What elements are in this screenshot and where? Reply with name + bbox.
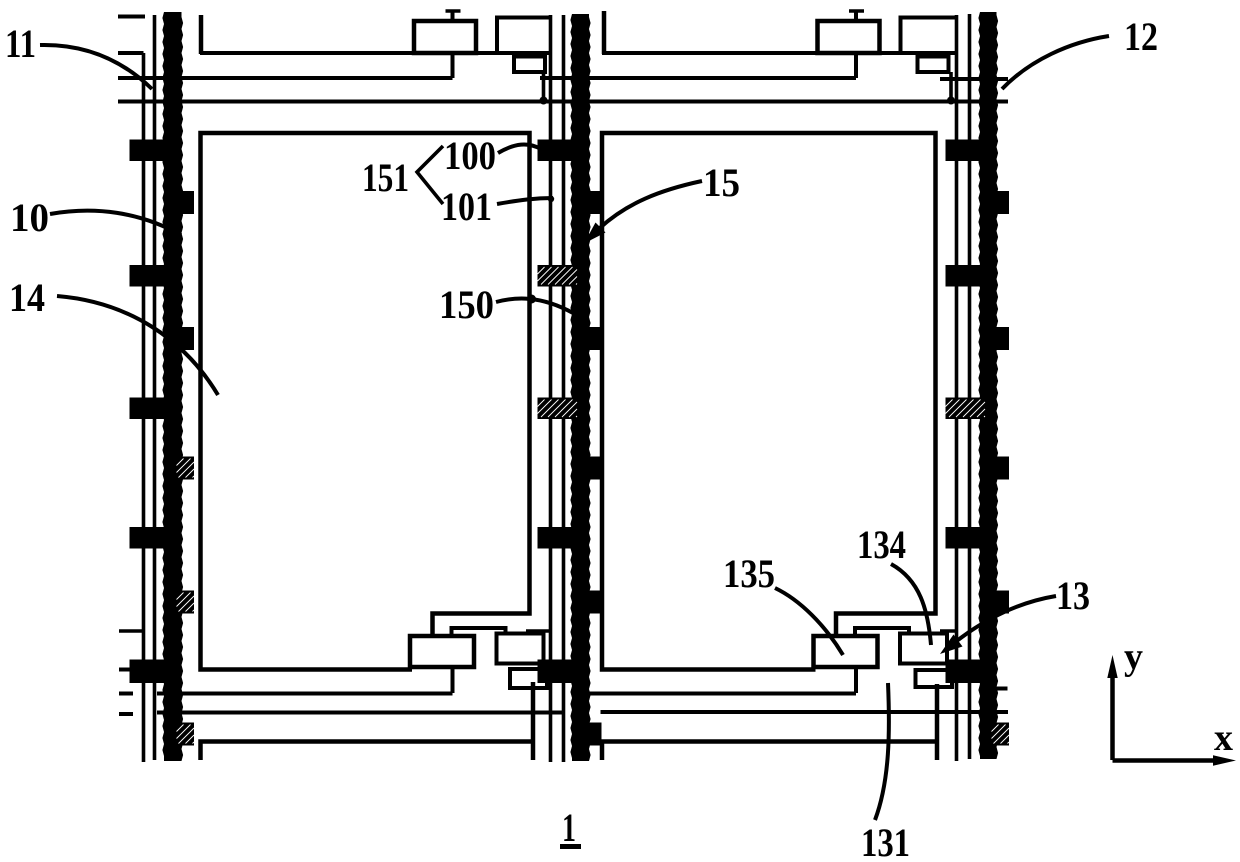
svg-text:14: 14 — [9, 275, 45, 320]
svg-text:135: 135 — [723, 551, 775, 596]
svg-text:12: 12 — [1124, 14, 1158, 59]
svg-text:11: 11 — [5, 21, 36, 66]
svg-text:151: 151 — [362, 155, 409, 200]
svg-text:y: y — [1124, 636, 1143, 678]
svg-text:150: 150 — [439, 282, 494, 327]
svg-text:13: 13 — [1056, 573, 1090, 618]
svg-text:1: 1 — [562, 805, 576, 850]
svg-text:134: 134 — [857, 522, 906, 567]
svg-text:100: 100 — [444, 133, 496, 178]
svg-text:10: 10 — [10, 195, 49, 240]
svg-text:131: 131 — [861, 820, 910, 862]
svg-text:15: 15 — [703, 160, 740, 205]
svg-text:x: x — [1214, 717, 1233, 759]
svg-text:101: 101 — [441, 184, 492, 229]
